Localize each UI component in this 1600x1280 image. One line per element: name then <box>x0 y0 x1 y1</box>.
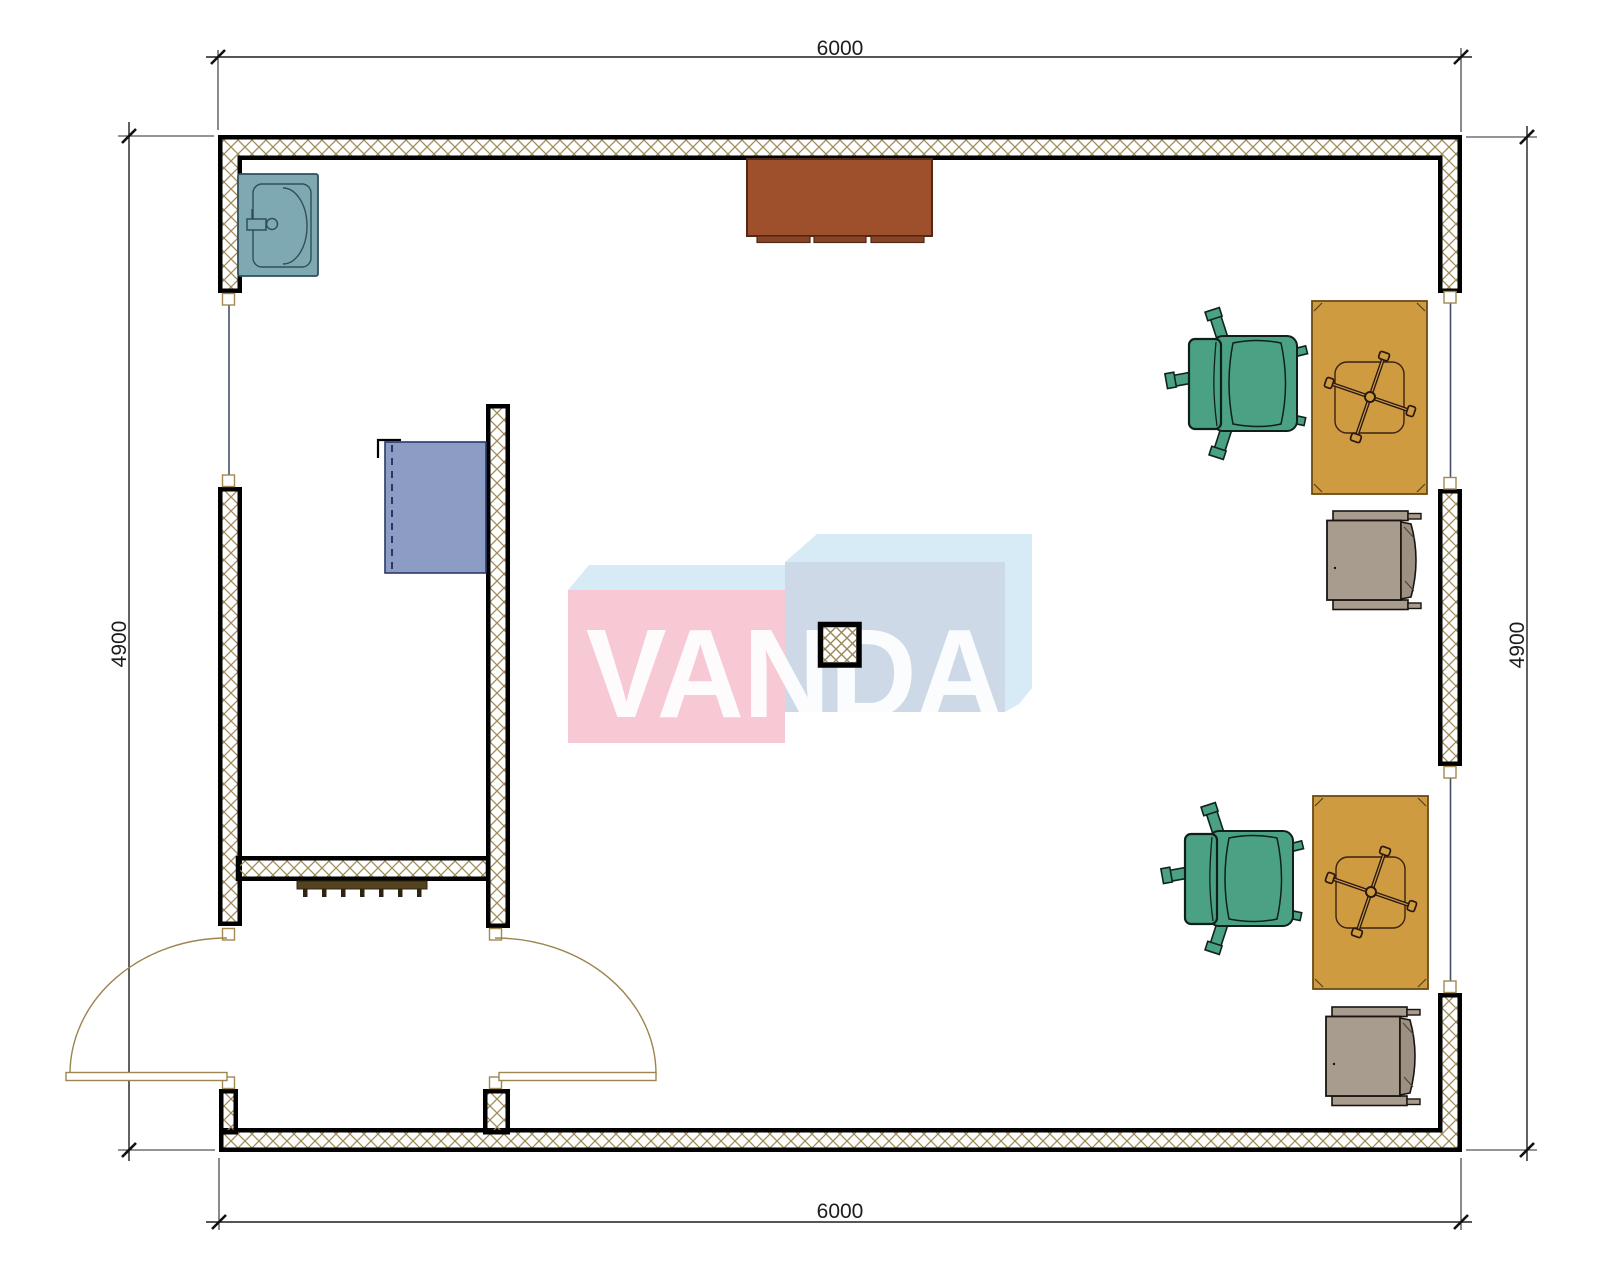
svg-text:VANDA: VANDA <box>586 604 1002 745</box>
svg-text:4900: 4900 <box>1506 622 1529 669</box>
svg-text:6000: 6000 <box>817 1200 864 1223</box>
svg-text:4900: 4900 <box>108 621 131 668</box>
svg-text:6000: 6000 <box>817 37 864 60</box>
